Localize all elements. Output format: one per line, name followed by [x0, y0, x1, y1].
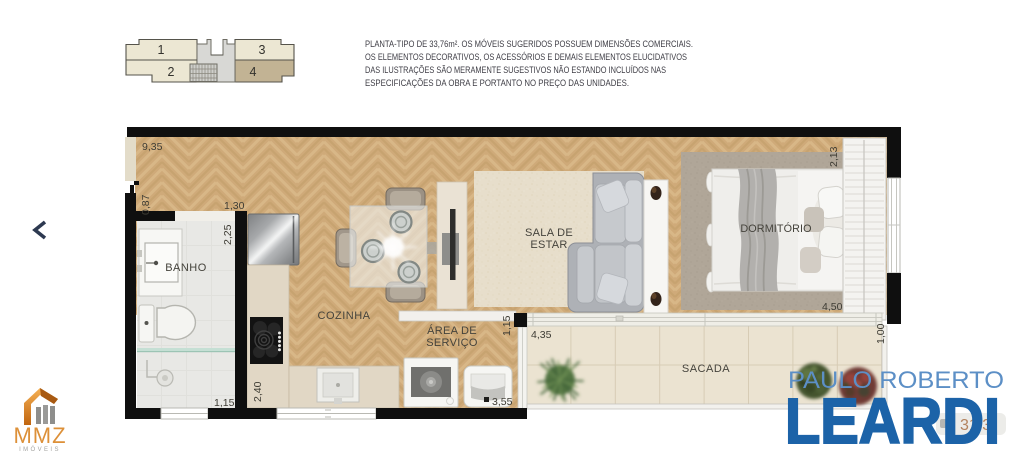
- svg-text:OS ELEMENTOS DECORATIVOS, OS A: OS ELEMENTOS DECORATIVOS, OS ACESSÓRIOS …: [365, 52, 687, 63]
- svg-text:SACADA: SACADA: [682, 363, 730, 375]
- svg-text:PLANTA-TIPO DE 33,76m². OS MÓV: PLANTA-TIPO DE 33,76m². OS MÓVEIS SUGERI…: [365, 39, 693, 50]
- svg-text:1,30: 1,30: [224, 200, 245, 212]
- svg-text:3: 3: [259, 43, 266, 57]
- svg-text:BANHO: BANHO: [165, 262, 207, 274]
- svg-text:DORMITÓRIO: DORMITÓRIO: [740, 222, 811, 235]
- svg-text:9,35: 9,35: [142, 141, 163, 153]
- svg-text:DAS ILUSTRAÇÕES SÃO MERAMENTE: DAS ILUSTRAÇÕES SÃO MERAMENTE SUGESTIVOS…: [365, 65, 666, 76]
- svg-text:MMZ: MMZ: [13, 423, 66, 448]
- svg-text:ESTAR: ESTAR: [530, 239, 567, 251]
- svg-text:1: 1: [158, 43, 165, 57]
- svg-text:2: 2: [168, 65, 175, 79]
- svg-text:4,35: 4,35: [531, 329, 552, 341]
- svg-text:4,50: 4,50: [822, 301, 843, 313]
- svg-text:SERVIÇO: SERVIÇO: [426, 337, 478, 349]
- svg-text:2,25: 2,25: [222, 224, 234, 245]
- svg-text:3,55: 3,55: [492, 396, 513, 408]
- svg-text:0,87: 0,87: [140, 194, 152, 215]
- svg-text:1,00: 1,00: [875, 323, 887, 344]
- svg-text:IMÓVEIS: IMÓVEIS: [19, 446, 61, 453]
- svg-text:4: 4: [250, 65, 257, 79]
- svg-text:1,15: 1,15: [214, 397, 235, 409]
- svg-text:2,40: 2,40: [252, 381, 264, 402]
- svg-text:1,15: 1,15: [501, 315, 513, 336]
- svg-text:ESPECIFICAÇÕES DA OBRA E PORTA: ESPECIFICAÇÕES DA OBRA E PORTANTO NO PRE…: [365, 78, 629, 89]
- svg-text:2,13: 2,13: [828, 146, 840, 167]
- svg-text:SALA DE: SALA DE: [525, 227, 573, 239]
- svg-text:COZINHA: COZINHA: [318, 310, 371, 322]
- svg-text:LEARDI: LEARDI: [785, 385, 1000, 457]
- svg-text:ÁREA DE: ÁREA DE: [427, 324, 477, 337]
